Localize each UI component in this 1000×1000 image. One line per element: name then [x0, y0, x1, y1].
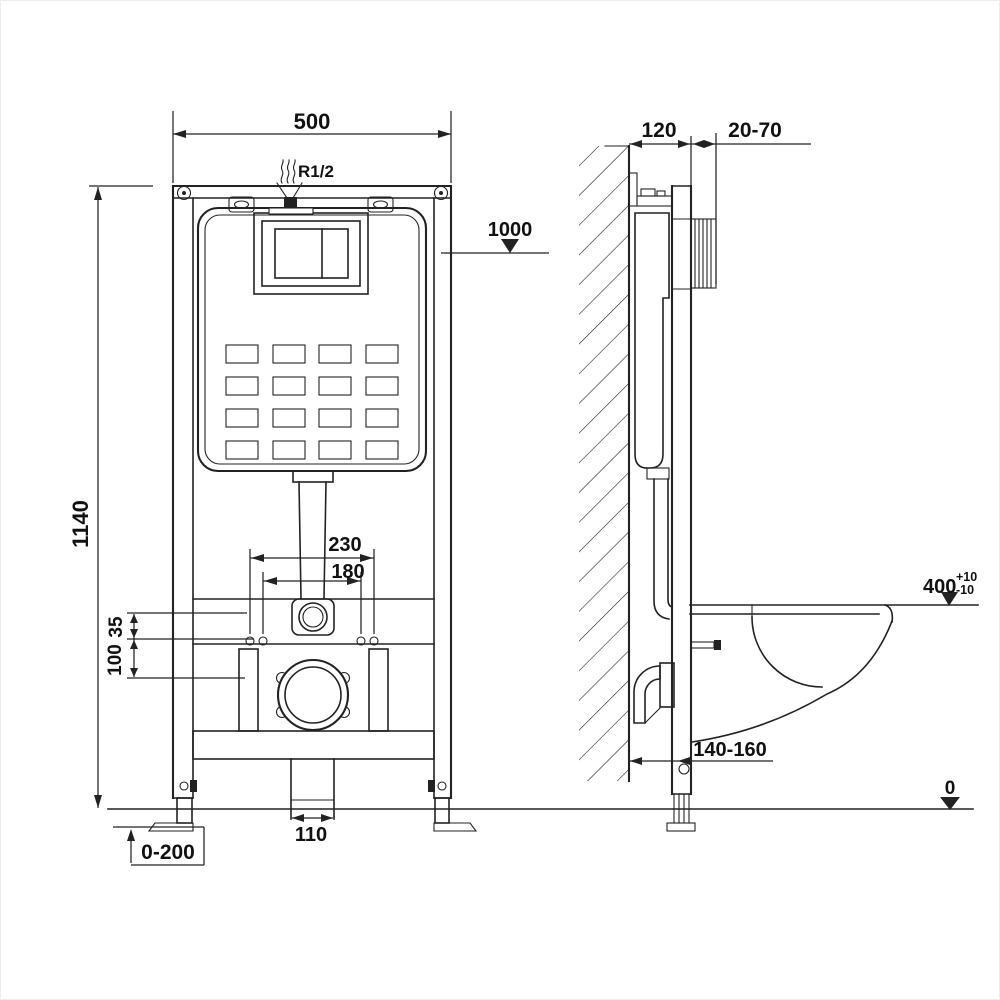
dim-120-label: 120: [641, 119, 676, 142]
wall-bracket: [629, 173, 672, 206]
push-plate-spacer: [691, 219, 716, 288]
front-view: [149, 160, 476, 831]
cistern-tank: [198, 208, 426, 471]
dim-level-1000: 1000: [441, 219, 549, 253]
dim-offsets: 35 100: [105, 613, 253, 678]
knockout-grid: [226, 345, 398, 459]
drain-bend-housing: [193, 649, 434, 759]
dim-400-label: 400: [923, 576, 956, 598]
dim-fixing-spans: 230 180: [250, 534, 374, 634]
dim-500-label: 500: [294, 109, 331, 134]
installation-drawing: 500 R1/2 1000 1140 230: [0, 0, 1000, 1000]
drain-elbow-side: [634, 663, 674, 723]
dim-outlet-distance: 140-160: [630, 739, 773, 765]
drain-outlet-pipe: [291, 759, 334, 819]
dim-0-200-label: 0-200: [141, 841, 195, 864]
flush-pipe: [293, 471, 333, 598]
dim-bowl-height: 400 +10 -10: [923, 570, 977, 606]
dim-outlet-width: 110: [292, 814, 333, 846]
dim-110-label: 110: [295, 824, 327, 846]
water-supply-label: R1/2: [298, 162, 334, 181]
dim-leg-range: 0-200: [113, 827, 204, 865]
dim-1140-label: 1140: [68, 500, 93, 548]
wall-hatching: [579, 146, 629, 781]
dim-35-label: 35: [106, 616, 127, 638]
level-1000-label: 1000: [488, 219, 533, 241]
flush-push-plate: [254, 213, 368, 294]
frame-rail-side: [672, 186, 691, 794]
dim-400-tol-plus: +10: [956, 570, 977, 584]
cistern-side-profile: [635, 213, 672, 619]
floor-0-label: 0: [945, 778, 956, 799]
dim-frame-height: 1140: [68, 186, 153, 808]
dim-400-tol-minus: -10: [956, 583, 974, 597]
fixing-rod: [691, 642, 714, 648]
dim-20-70-label: 20-70: [728, 119, 782, 142]
dimensions: 500 R1/2 1000 1140 230: [68, 109, 977, 865]
toilet-bowl-profile: [690, 605, 978, 742]
dim-depths: 120 20-70: [629, 119, 811, 284]
dim-140-160-label: 140-160: [693, 739, 766, 761]
dim-100-label: 100: [105, 644, 126, 676]
side-view: [579, 146, 978, 831]
bend-support-plate: [193, 599, 434, 645]
dim-floor-level: 0: [940, 778, 960, 810]
dim-180-label: 180: [331, 561, 364, 583]
technical-diagram-svg: 500 R1/2 1000 1140 230: [1, 1, 1000, 1000]
dim-230-label: 230: [328, 534, 361, 556]
